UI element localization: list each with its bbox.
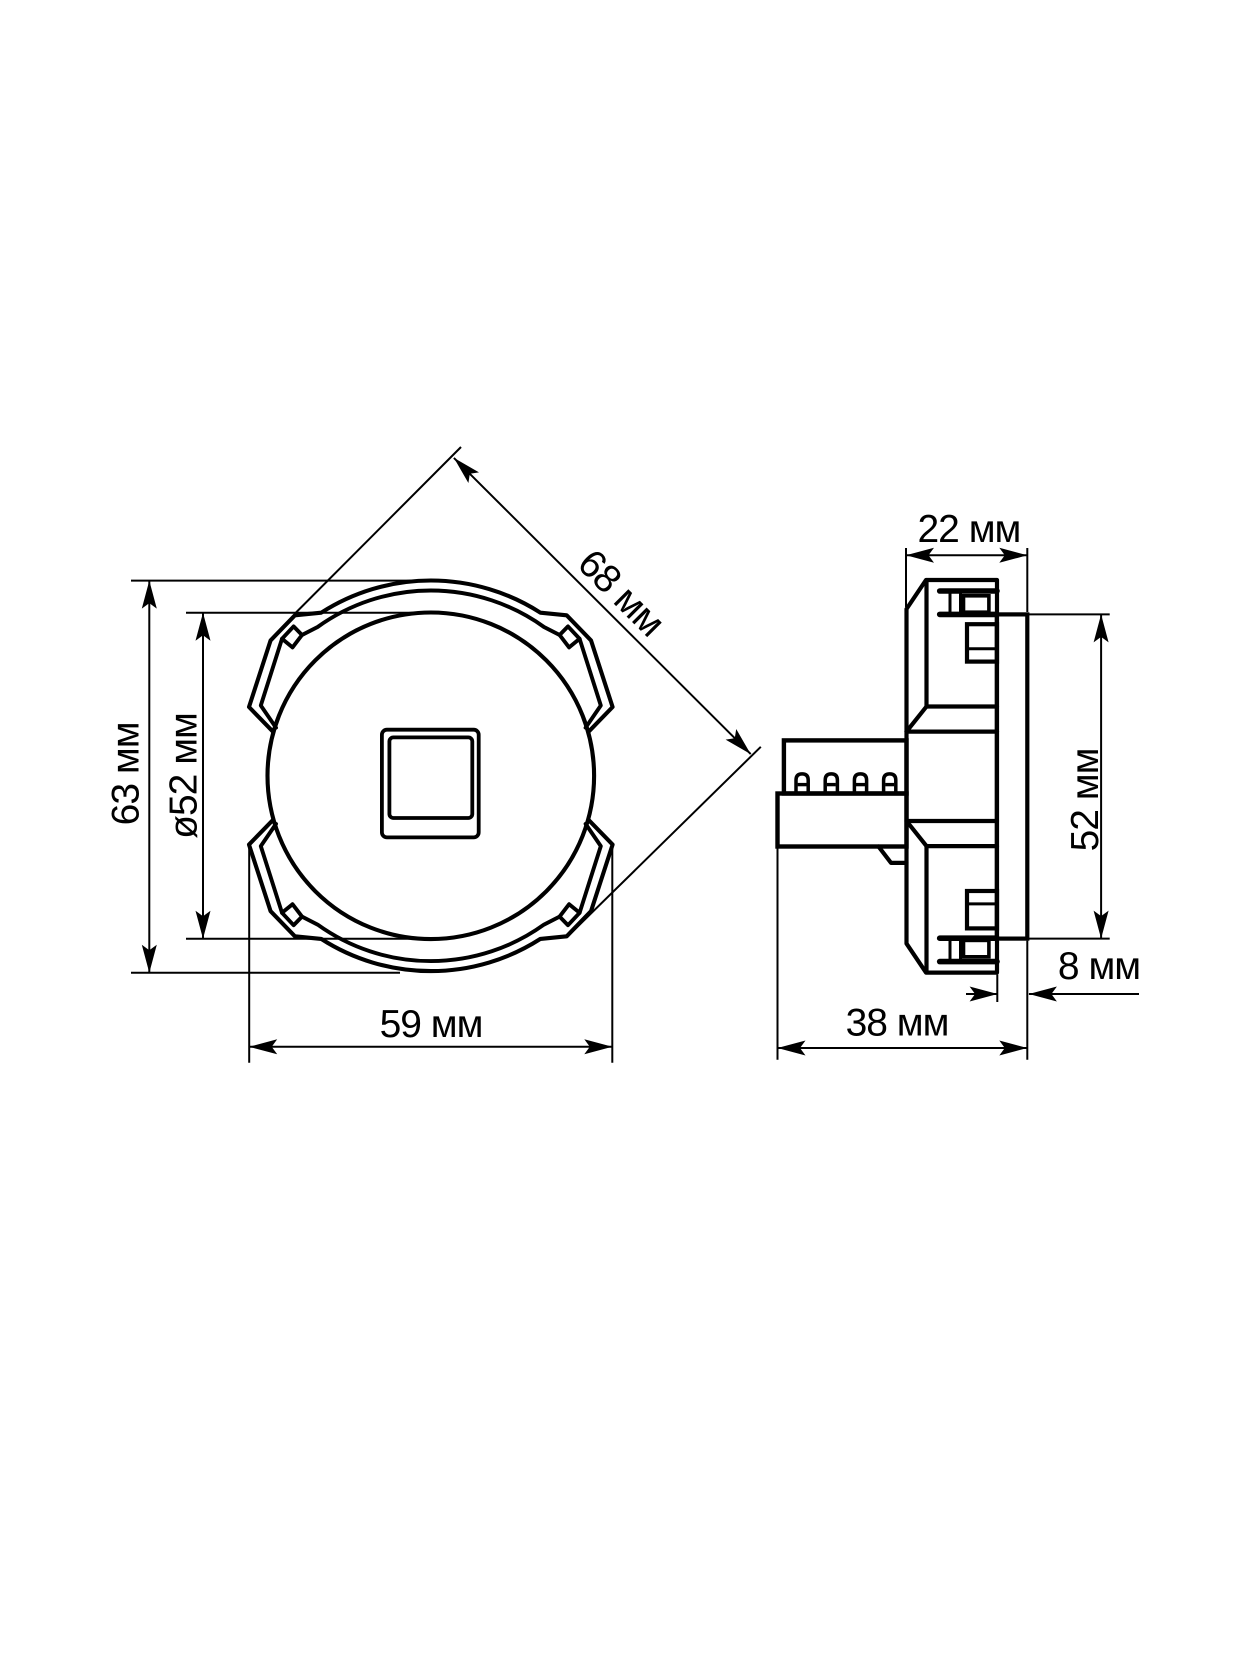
svg-text:38 мм: 38 мм — [846, 1002, 949, 1045]
svg-text:ø52 мм: ø52 мм — [163, 713, 206, 839]
svg-text:22 мм: 22 мм — [917, 508, 1020, 551]
svg-text:63 мм: 63 мм — [104, 722, 147, 825]
svg-text:8 мм: 8 мм — [1058, 945, 1140, 988]
svg-text:52 мм: 52 мм — [1064, 749, 1107, 852]
svg-text:59 мм: 59 мм — [380, 1003, 483, 1046]
